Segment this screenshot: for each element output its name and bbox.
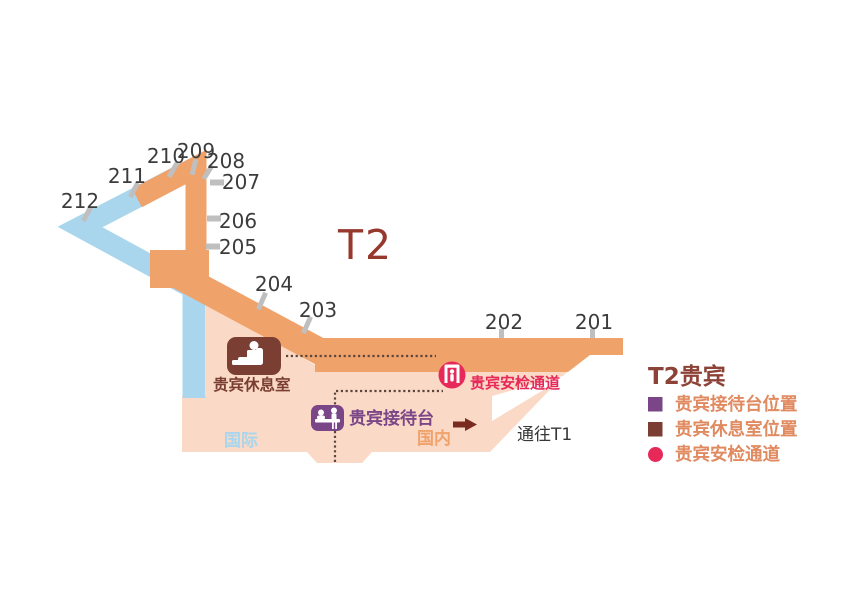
gate-label-201: 201 (575, 310, 613, 334)
gate-label-211: 211 (108, 164, 146, 188)
gate-label-205: 205 (219, 235, 257, 259)
terminal-map: 212 211 210 209 208 207 206 205 204 203 … (0, 0, 864, 611)
terminal-title: T2 (337, 221, 393, 269)
to-t1-label: 通往T1 (517, 425, 572, 445)
background (0, 0, 864, 611)
legend-item-lounge: 贵宾休息室位置 (675, 419, 798, 440)
legend-title: T2贵宾 (648, 363, 726, 390)
gate-label-212: 212 (61, 189, 99, 213)
domestic-area-label: 国内 (417, 428, 451, 449)
legend-item-reception: 贵宾接待台位置 (675, 394, 798, 415)
legend-marker-lounge (648, 422, 663, 437)
international-area-label: 国际 (224, 431, 258, 451)
vip-reception-label: 贵宾接待台 (349, 408, 434, 429)
vip-lounge-label: 贵宾休息室 (213, 375, 291, 394)
gate-label-203: 203 (299, 298, 337, 322)
gate-label-206: 206 (219, 209, 257, 233)
vip-security-icon (439, 362, 466, 389)
vip-security-label: 贵宾安检通道 (470, 374, 560, 392)
vip-lounge-icon (227, 337, 281, 375)
gate-label-202: 202 (485, 310, 523, 334)
gate-label-207: 207 (222, 170, 260, 194)
legend-marker-security (648, 447, 663, 462)
terminal-map-page: 212 211 210 209 208 207 206 205 204 203 … (0, 0, 864, 611)
legend-item-security: 贵宾安检通道 (675, 444, 780, 465)
legend-marker-reception (648, 397, 663, 412)
vip-reception-icon (311, 405, 344, 431)
gate-label-204: 204 (255, 272, 293, 296)
gate-tick-205 (206, 244, 220, 250)
